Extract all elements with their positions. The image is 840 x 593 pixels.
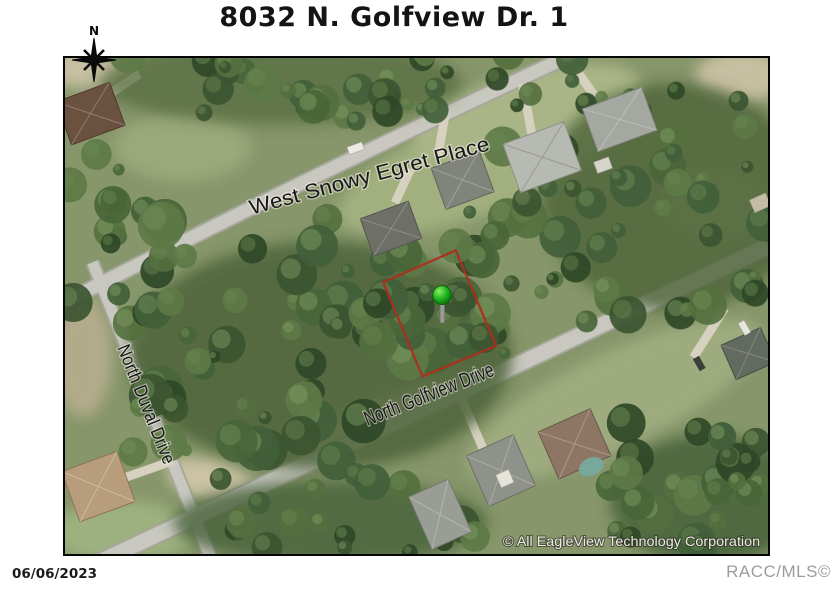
page-title: 8032 N. Golfview Dr. 1 [0,2,840,33]
listing-page: 8032 N. Golfview Dr. 1 [0,0,840,593]
north-compass-icon: N [70,23,118,83]
aerial-photo: West Snowy Egret Place North Duval Drive… [63,56,770,556]
photo-date-label: 06/06/2023 [12,566,97,582]
mls-credit-label: RACC/MLS© [726,562,831,582]
imagery-copyright-label: © All EagleView Technology Corporation [503,533,760,549]
compass-star [72,38,116,82]
compass-north-label: N [89,24,99,38]
aerial-photo-canvas: West Snowy Egret Place North Duval Drive… [65,58,768,554]
